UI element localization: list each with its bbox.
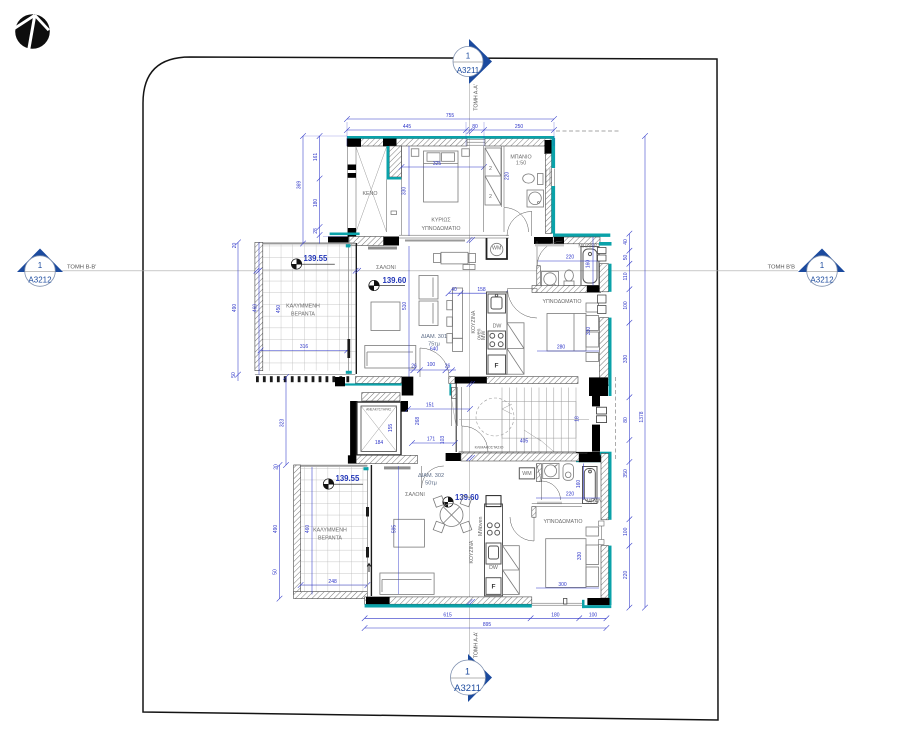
svg-text:325: 325: [433, 161, 442, 167]
svg-text:220: 220: [623, 571, 629, 580]
svg-text:110: 110: [623, 272, 629, 280]
svg-text:615: 615: [443, 612, 452, 618]
svg-text:330: 330: [586, 327, 592, 336]
svg-text:50τμ: 50τμ: [425, 481, 437, 487]
svg-text:ΚΑΛΥΜΜΕΝΗ: ΚΑΛΥΜΜΕΝΗ: [313, 528, 347, 534]
svg-text:248: 248: [328, 579, 337, 585]
svg-text:80: 80: [472, 124, 478, 130]
svg-text:220: 220: [566, 255, 575, 261]
svg-text:18: 18: [575, 416, 581, 422]
svg-text:2: 2: [489, 194, 492, 200]
svg-text:DW: DW: [489, 565, 498, 571]
svg-text:171: 171: [427, 437, 436, 443]
svg-text:1: 1: [38, 261, 43, 270]
svg-text:ΤΟΜΗ Β'Β: ΤΟΜΗ Β'Β: [768, 265, 796, 271]
svg-text:80: 80: [623, 417, 629, 423]
svg-text:28: 28: [313, 228, 319, 234]
svg-text:460: 460: [305, 525, 311, 534]
svg-text:490: 490: [273, 525, 279, 534]
svg-text:220: 220: [566, 492, 575, 498]
svg-text:100: 100: [623, 527, 629, 536]
svg-text:460: 460: [253, 304, 259, 313]
svg-text:ΚΥΡΙΩΣ: ΚΥΡΙΩΣ: [431, 218, 451, 224]
svg-text:220: 220: [505, 172, 511, 181]
svg-text:350: 350: [623, 469, 629, 478]
svg-text:139.55: 139.55: [304, 254, 329, 263]
svg-text:A3212: A3212: [810, 276, 834, 285]
svg-text:50: 50: [231, 372, 237, 378]
svg-text:100: 100: [623, 301, 629, 310]
svg-text:ΤΟΜΗ Α-Α': ΤΟΜΗ Α-Α': [474, 84, 480, 111]
svg-text:ΑΝΕΛΚΥΣΤΗΡΑΣ: ΑΝΕΛΚΥΣΤΗΡΑΣ: [366, 408, 391, 412]
svg-text:oven: oven: [478, 516, 484, 528]
svg-text:300: 300: [558, 582, 567, 588]
svg-text:490: 490: [232, 304, 238, 313]
svg-text:26: 26: [445, 364, 451, 370]
svg-text:755: 755: [446, 113, 455, 119]
svg-text:40: 40: [451, 287, 457, 293]
svg-text:ΚΑΛΥΜΜΕΝΗ: ΚΑΛΥΜΜΕΝΗ: [286, 304, 320, 310]
svg-text:1: 1: [466, 52, 471, 61]
svg-text:369: 369: [297, 181, 303, 190]
svg-text:450: 450: [276, 305, 282, 314]
svg-text:1378: 1378: [639, 411, 645, 422]
svg-text:ΥΠΝΟΔΩΜΑΤΙΟ: ΥΠΝΟΔΩΜΑΤΙΟ: [542, 299, 581, 305]
svg-text:595: 595: [392, 525, 398, 534]
svg-text:316: 316: [300, 344, 309, 350]
svg-text:50: 50: [273, 569, 279, 575]
svg-text:ΜΠΑΝΙΟ: ΜΠΑΝΙΟ: [578, 244, 599, 250]
svg-text:139.60: 139.60: [455, 493, 480, 502]
svg-text:ΣΑΛΟΝΙ: ΣΑΛΟΝΙ: [405, 492, 425, 498]
svg-text:ΤΟΜΗ Β-Β': ΤΟΜΗ Β-Β': [67, 265, 96, 271]
svg-text:ΚΟΥΖΙΝΑ: ΚΟΥΖΙΝΑ: [471, 310, 477, 333]
svg-text:1: 1: [465, 667, 470, 677]
svg-text:151: 151: [426, 403, 435, 409]
svg-text:180: 180: [551, 612, 560, 618]
svg-text:A3211: A3211: [454, 683, 481, 694]
svg-text:100: 100: [589, 612, 598, 618]
svg-text:ΥΠΝΟΔΩΜΑΤΙΟ: ΥΠΝΟΔΩΜΑΤΙΟ: [543, 519, 582, 525]
svg-text:330: 330: [623, 355, 629, 364]
svg-text:50: 50: [623, 255, 629, 261]
svg-text:ΔΙΑΜ. 302: ΔΙΑΜ. 302: [418, 473, 444, 479]
svg-text:1:50: 1:50: [516, 161, 526, 167]
svg-text:ΒΕΡΑΝΤΑ: ΒΕΡΑΝΤΑ: [318, 536, 342, 542]
svg-text:ΤΟΜΗ Α-Α': ΤΟΜΗ Α-Α': [474, 632, 480, 659]
svg-text:184: 184: [375, 440, 384, 446]
svg-text:330: 330: [402, 187, 408, 196]
svg-text:40: 40: [623, 239, 629, 245]
svg-text:155: 155: [388, 424, 394, 433]
svg-text:ΥΠΝΟΔΩΜΑΤΙΟ: ΥΠΝΟΔΩΜΑΤΙΟ: [421, 226, 460, 232]
svg-text:20: 20: [232, 243, 238, 249]
svg-text:ΚΕΝΟ: ΚΕΝΟ: [362, 191, 377, 197]
svg-text:100: 100: [427, 362, 436, 368]
svg-text:280: 280: [557, 345, 566, 351]
svg-text:ΣΑΛΟΝΙ: ΣΑΛΟΝΙ: [376, 265, 396, 271]
svg-text:250: 250: [515, 124, 524, 130]
svg-text:445: 445: [403, 124, 412, 130]
svg-text:WM: WM: [522, 471, 531, 477]
svg-text:ΚΟΥΖΙΝΑ: ΚΟΥΖΙΝΑ: [469, 540, 475, 563]
svg-text:A3212: A3212: [28, 276, 52, 285]
svg-text:MW: MW: [478, 527, 484, 536]
svg-text:20: 20: [274, 464, 280, 470]
svg-text:895: 895: [483, 622, 492, 628]
svg-text:160: 160: [576, 480, 582, 489]
svg-text:160: 160: [586, 260, 592, 269]
svg-text:ΒΕΡΑΝΤΑ: ΒΕΡΑΝΤΑ: [291, 312, 315, 318]
svg-text:139.55: 139.55: [336, 474, 361, 483]
svg-text:161: 161: [313, 153, 319, 162]
svg-text:323: 323: [280, 419, 286, 428]
svg-text:180: 180: [313, 199, 319, 208]
svg-text:DW: DW: [493, 324, 502, 330]
svg-text:ΚΛΙΜΑΚΟΣΤΑΣΙΟ: ΚΛΙΜΑΚΟΣΤΑΣΙΟ: [475, 446, 504, 450]
svg-text:WM: WM: [492, 246, 501, 252]
svg-text:510: 510: [402, 302, 408, 311]
svg-text:2: 2: [489, 166, 492, 172]
svg-text:MW: MW: [481, 331, 487, 340]
svg-text:139.60: 139.60: [383, 276, 408, 285]
svg-text:A3211: A3211: [457, 66, 480, 75]
svg-text:268: 268: [415, 417, 421, 426]
svg-text:1: 1: [820, 261, 825, 270]
svg-text:26: 26: [411, 364, 417, 370]
svg-text:405: 405: [520, 439, 529, 445]
svg-text:330: 330: [577, 552, 583, 561]
svg-text:ΔΙΑΜ. 301: ΔΙΑΜ. 301: [421, 334, 447, 340]
svg-text:F: F: [492, 584, 496, 591]
svg-text:F: F: [495, 363, 499, 370]
svg-text:158: 158: [477, 287, 486, 293]
